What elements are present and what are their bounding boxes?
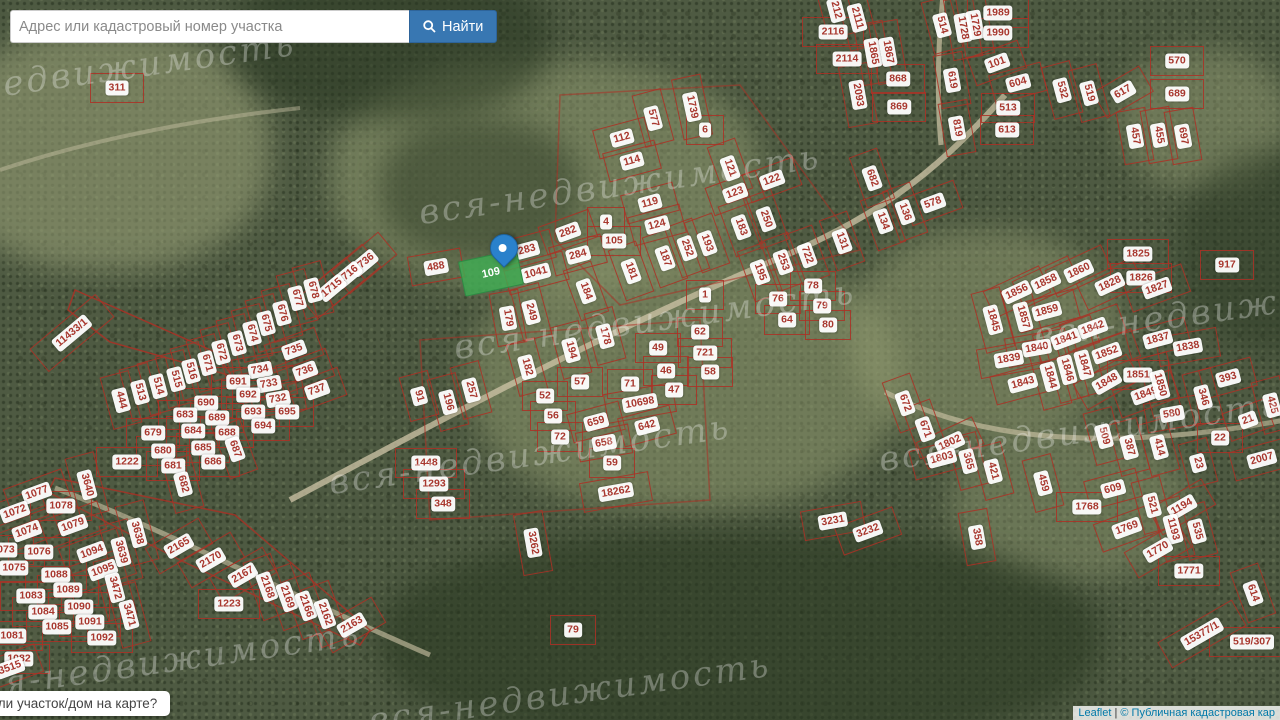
parcel-label[interactable]: 679: [141, 426, 165, 441]
parcel-label[interactable]: 692: [236, 388, 260, 403]
parcel-label[interactable]: 917: [1215, 258, 1239, 273]
parcel-label[interactable]: 683: [173, 408, 197, 423]
not-found-prompt[interactable]: Не нашли участок/дом на карте?: [0, 691, 170, 716]
parcel-label[interactable]: 689: [1165, 87, 1189, 102]
parcel-label[interactable]: 1825: [1123, 247, 1152, 262]
parcel-label[interactable]: 1085: [42, 620, 71, 635]
search-icon: [423, 20, 436, 33]
parcel-label[interactable]: 689: [205, 411, 229, 426]
search-bar: Найти: [10, 10, 497, 43]
parcel-label[interactable]: 2114: [833, 52, 862, 67]
parcel-label[interactable]: 57: [571, 375, 589, 390]
parcel-label[interactable]: 6: [699, 123, 711, 138]
parcel-label[interactable]: 1078: [46, 499, 75, 514]
parcel-label[interactable]: 1: [699, 288, 711, 303]
parcel-label[interactable]: 46: [657, 364, 675, 379]
parcel-label[interactable]: 1081: [0, 629, 27, 644]
parcel-label[interactable]: 79: [813, 299, 831, 314]
parcel-label[interactable]: 79: [564, 623, 582, 638]
leaflet-link[interactable]: Leaflet: [1078, 707, 1111, 719]
parcel-label[interactable]: 695: [275, 405, 299, 420]
parcel-label[interactable]: 693: [241, 405, 265, 420]
parcel-label[interactable]: 685: [191, 441, 215, 456]
parcel-label[interactable]: 1293: [419, 477, 448, 492]
parcel-label[interactable]: 1990: [983, 26, 1012, 41]
parcel-label[interactable]: 1771: [1174, 564, 1203, 579]
parcel-label[interactable]: 513: [996, 101, 1020, 116]
parcel-label[interactable]: 1076: [24, 545, 53, 560]
search-button[interactable]: Найти: [409, 10, 497, 43]
parcel-label[interactable]: 72: [551, 430, 569, 445]
parcel-label[interactable]: 868: [886, 72, 910, 87]
parcel-label[interactable]: 721: [693, 346, 717, 361]
parcel-label[interactable]: 1088: [41, 568, 70, 583]
parcel-label[interactable]: 869: [887, 100, 911, 115]
selected-parcel-label: 109: [481, 265, 501, 281]
parcel-label[interactable]: 1083: [16, 589, 45, 604]
parcel-label[interactable]: 690: [194, 396, 218, 411]
parcel-label[interactable]: 78: [804, 279, 822, 294]
parcel-label[interactable]: 71: [621, 377, 639, 392]
search-button-label: Найти: [442, 19, 483, 35]
parcel-label[interactable]: 348: [431, 497, 455, 512]
parcel-label[interactable]: 1084: [28, 605, 57, 620]
parcel-label[interactable]: 76: [769, 292, 787, 307]
parcel-label[interactable]: 684: [181, 424, 205, 439]
parcel-label[interactable]: 1989: [983, 6, 1012, 21]
parcel-label[interactable]: 4: [600, 215, 612, 230]
parcel-label[interactable]: 1089: [53, 583, 82, 598]
parcel-label[interactable]: 694: [251, 419, 275, 434]
parcel-label[interactable]: 570: [1165, 54, 1189, 69]
parcel-label[interactable]: 1448: [411, 456, 440, 471]
parcel-label[interactable]: 62: [691, 325, 709, 340]
parcel-label[interactable]: 80: [819, 318, 837, 333]
parcel-label[interactable]: 49: [649, 341, 667, 356]
attribution-bar: Leaflet | © Публичная кадастровая кар: [1073, 706, 1280, 720]
parcel-label[interactable]: 1223: [214, 597, 243, 612]
parcel-label[interactable]: 56: [544, 409, 562, 424]
parcel-label[interactable]: 2116: [819, 25, 848, 40]
parcel-label[interactable]: 680: [151, 444, 175, 459]
parcel-label[interactable]: 1090: [64, 600, 93, 615]
parcel-label[interactable]: 59: [603, 456, 621, 471]
parcel-label[interactable]: 311: [106, 81, 129, 96]
parcel-label[interactable]: 686: [201, 455, 225, 470]
parcel-label[interactable]: 1092: [87, 631, 116, 646]
map-canvas[interactable]: 3112122111211618651867211420938688695141…: [0, 0, 1280, 720]
marker-dot: [496, 242, 507, 253]
cadastre-link[interactable]: © Публичная кадастровая кар: [1120, 707, 1275, 719]
parcel-label[interactable]: 1222: [112, 455, 141, 470]
parcel-label[interactable]: 105: [602, 234, 626, 249]
parcel-label[interactable]: 22: [1211, 431, 1229, 446]
parcel-label[interactable]: 52: [536, 389, 554, 404]
parcel-label[interactable]: 64: [778, 313, 796, 328]
parcel-label[interactable]: 1851: [1123, 368, 1152, 383]
parcel-label[interactable]: 613: [995, 123, 1019, 138]
parcel-label[interactable]: 1768: [1072, 500, 1101, 515]
parcel-label[interactable]: 47: [665, 383, 683, 398]
parcel-label[interactable]: 1075: [0, 561, 29, 576]
parcel-label[interactable]: 519/307: [1230, 635, 1274, 650]
parcel-label[interactable]: 1091: [75, 615, 104, 630]
parcel-label[interactable]: 58: [701, 365, 719, 380]
search-input[interactable]: [10, 10, 409, 43]
parcel-label[interactable]: 1073: [0, 543, 18, 558]
